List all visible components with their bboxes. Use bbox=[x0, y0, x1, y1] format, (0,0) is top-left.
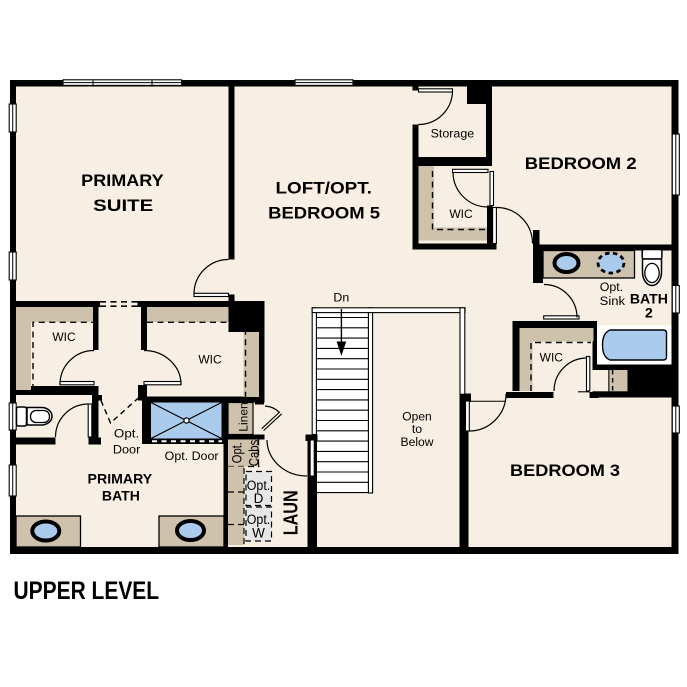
svg-text:UPPER LEVEL: UPPER LEVEL bbox=[14, 577, 160, 605]
svg-text:Opt.: Opt. bbox=[230, 442, 245, 463]
svg-text:Linen: Linen bbox=[237, 402, 251, 432]
svg-text:Dn: Dn bbox=[333, 291, 349, 305]
svg-text:BEDROOM 2: BEDROOM 2 bbox=[525, 154, 637, 173]
svg-text:BATH: BATH bbox=[102, 487, 140, 503]
svg-text:LAUN: LAUN bbox=[280, 490, 302, 535]
svg-text:Opt.: Opt. bbox=[600, 280, 623, 294]
svg-text:LOFT/OPT.: LOFT/OPT. bbox=[276, 179, 372, 198]
svg-text:WIC: WIC bbox=[198, 353, 221, 367]
svg-text:Storage: Storage bbox=[431, 126, 475, 140]
svg-text:SUITE: SUITE bbox=[93, 196, 153, 215]
svg-text:Opt. Door: Opt. Door bbox=[165, 449, 219, 463]
svg-text:Sink: Sink bbox=[600, 294, 626, 308]
svg-text:Opt.: Opt. bbox=[114, 427, 139, 441]
svg-text:BEDROOM 3: BEDROOM 3 bbox=[510, 461, 620, 480]
svg-text:WIC: WIC bbox=[52, 330, 75, 344]
svg-text:WIC: WIC bbox=[540, 350, 563, 364]
svg-text:to: to bbox=[412, 422, 422, 436]
svg-text:Door: Door bbox=[113, 443, 140, 457]
svg-text:W: W bbox=[252, 526, 265, 541]
svg-text:BEDROOM 5: BEDROOM 5 bbox=[268, 203, 380, 222]
svg-text:WIC: WIC bbox=[449, 207, 472, 221]
svg-text:2: 2 bbox=[645, 305, 653, 321]
svg-text:D: D bbox=[254, 491, 264, 506]
svg-text:Cabs: Cabs bbox=[247, 440, 262, 467]
svg-text:PRIMARY: PRIMARY bbox=[81, 171, 164, 190]
svg-text:PRIMARY: PRIMARY bbox=[88, 471, 153, 487]
svg-text:Below: Below bbox=[401, 435, 434, 449]
